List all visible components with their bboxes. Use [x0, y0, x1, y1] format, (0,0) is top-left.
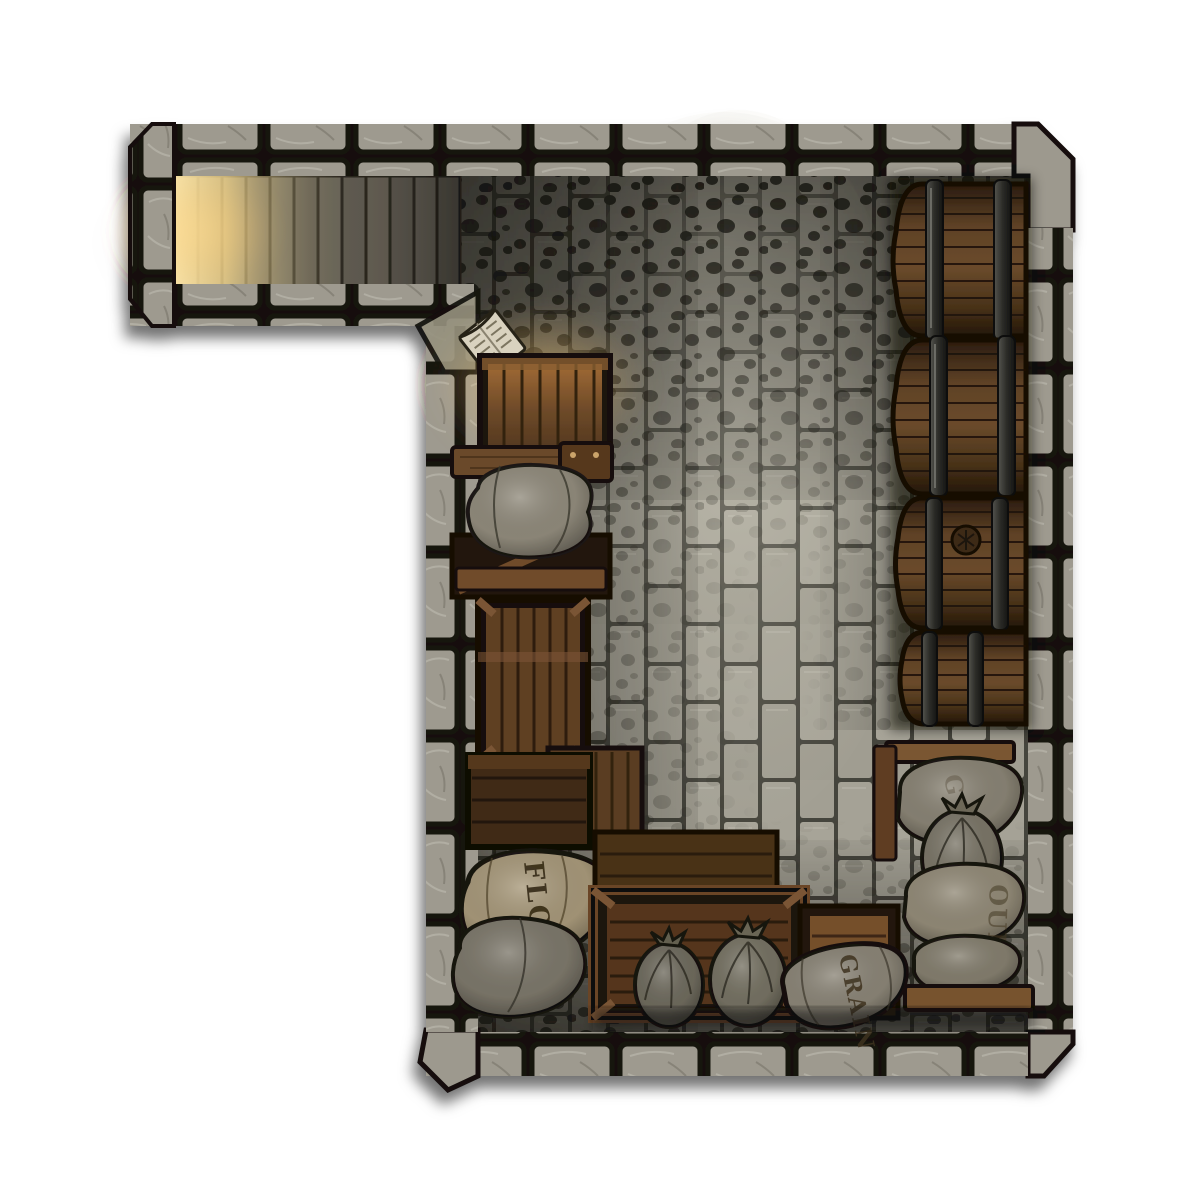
battlemap-svg: FLOUR: [0, 0, 1200, 1200]
dark-crate: [468, 755, 590, 847]
wall-corner-bottomleft: [420, 1030, 478, 1090]
gray-sack-bottomleft: [453, 918, 585, 1017]
stack-plank-bottom: [905, 986, 1033, 1010]
wall-top: [130, 124, 1014, 176]
wall-corridor-cap: [130, 124, 174, 326]
tall-crate: [478, 600, 588, 762]
barrel-3: [894, 498, 1026, 630]
wall-corner-bottomright: [1028, 1032, 1073, 1076]
barrel-rack: [890, 178, 1032, 730]
burlap-sack-left: [468, 465, 592, 557]
barrel-4: [899, 632, 1026, 726]
wall-bottom: [426, 1032, 1028, 1076]
map-root: FLOUR: [116, 110, 1073, 1090]
barrel-1: [891, 180, 1026, 340]
barrel-2: [891, 336, 1026, 496]
wall-right: [1028, 228, 1073, 1034]
wall-corridor-bottom: [130, 284, 474, 326]
battlemap-stage: FLOUR: [0, 0, 1200, 1200]
ground-shadow: [593, 1008, 1033, 1030]
stack-board-left: [874, 746, 896, 860]
